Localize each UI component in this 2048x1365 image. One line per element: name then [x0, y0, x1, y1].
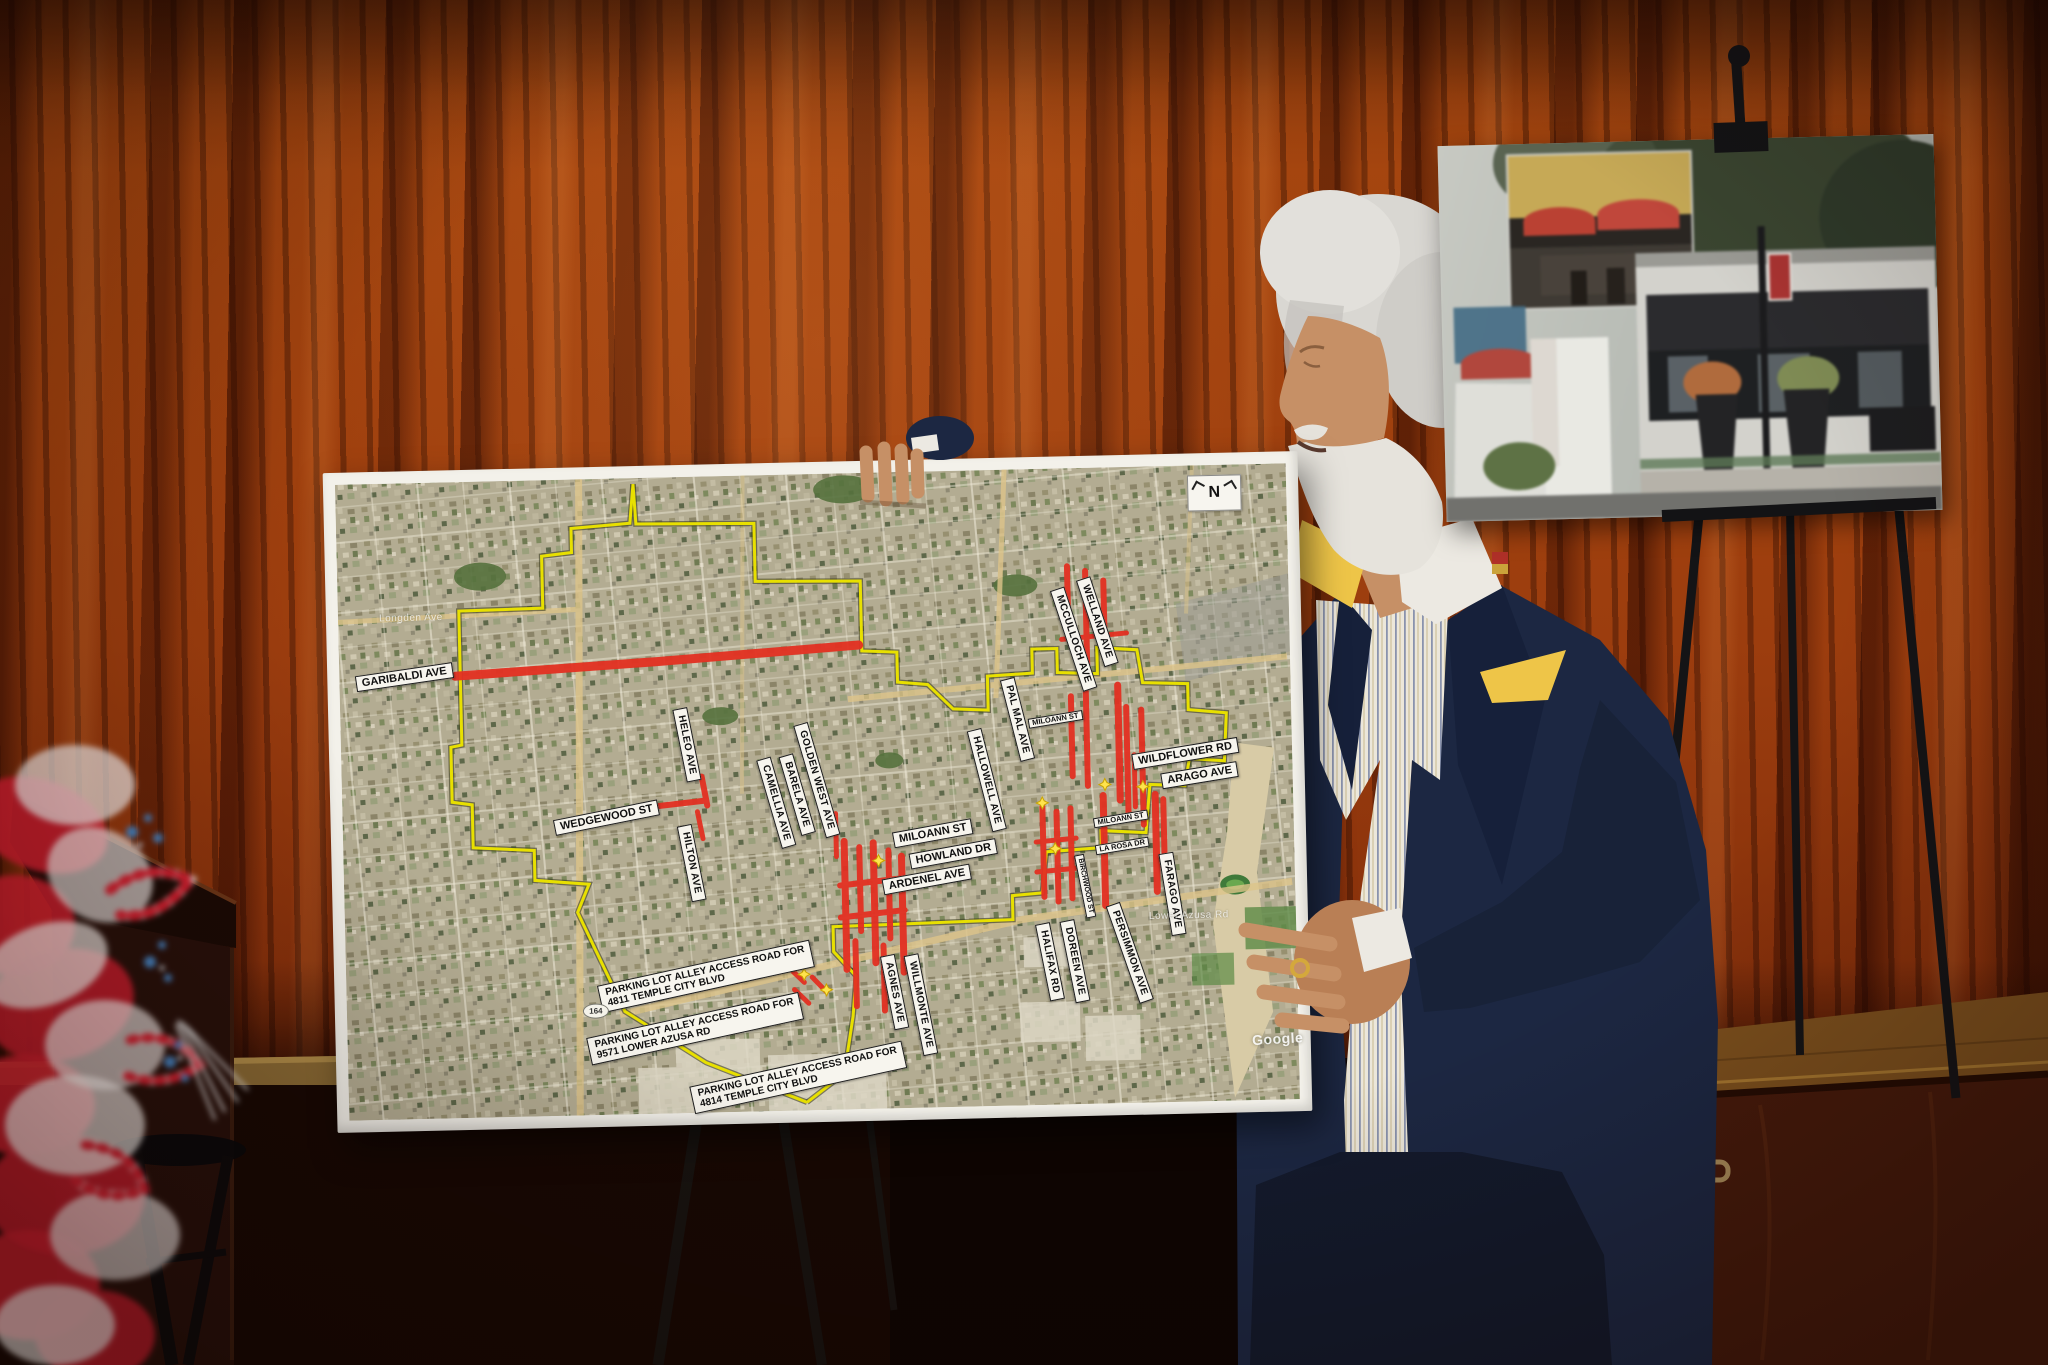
basemap-road-name: Lower Azusa Rd — [1149, 909, 1229, 922]
street-label: WILLMONTE AVE — [903, 953, 938, 1056]
trousers — [1250, 1152, 1612, 1365]
map-poster: GARIBALDI AVEWEDGEWOOD STHELEO AVEHILTON… — [323, 451, 1313, 1133]
red-umbrella — [1523, 206, 1596, 236]
street-label: PERSIMMON AVE — [1106, 902, 1154, 1004]
bench — [1869, 406, 1936, 452]
street-label: LA ROSA DR — [1095, 837, 1150, 856]
north-indicator: N — [1187, 474, 1242, 511]
lapel-pin — [1492, 552, 1508, 574]
photo-collage-images — [1437, 134, 1942, 522]
street-label: HALLOWELL AVE — [967, 728, 1007, 833]
patriotic-wreath — [0, 740, 320, 1365]
street-label: MILOANN ST — [1028, 710, 1084, 729]
street-label: FARAGO AVE — [1158, 852, 1186, 936]
street-label: HILTON AVE — [677, 824, 707, 902]
north-label: N — [1208, 484, 1220, 502]
photo-collage-poster — [1437, 134, 1942, 522]
street-label: DOREEN AVE — [1059, 919, 1090, 1003]
street-label-layer: GARIBALDI AVEWEDGEWOOD STHELEO AVEHILTON… — [323, 451, 1313, 1133]
street-label: ARAGO AVE — [1160, 761, 1239, 790]
street-label: ARDENEL AVE — [882, 864, 973, 896]
street-label: WEDGEWOOD ST — [553, 799, 660, 836]
google-watermark: Google — [1252, 1029, 1304, 1048]
street-label: HELEO AVE — [672, 707, 701, 783]
basemap-road-name: Longden Ave — [379, 612, 443, 624]
stage-photo: GARIBALDI AVEWEDGEWOOD STHELEO AVEHILTON… — [0, 0, 2048, 1365]
street-label: HALIFAX RD — [1035, 922, 1065, 1001]
street-label: BIRCHWOOD ST — [1074, 854, 1096, 918]
street-label: MILOANN ST — [1093, 810, 1149, 829]
street-label: GARIBALDI AVE — [355, 662, 454, 692]
banner-sign — [1767, 253, 1792, 302]
street-label: PARKING LOT ALLEY ACCESS ROAD FOR 4814 T… — [689, 1040, 907, 1114]
